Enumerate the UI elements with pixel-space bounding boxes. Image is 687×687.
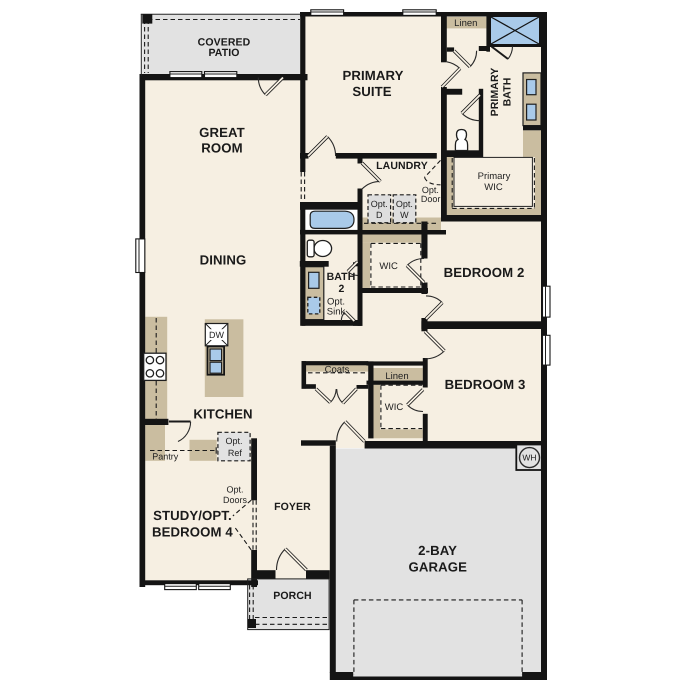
svg-text:Opt.: Opt. (396, 199, 413, 209)
svg-text:WIC: WIC (385, 402, 404, 413)
svg-text:DINING: DINING (200, 253, 247, 268)
svg-text:WIC: WIC (484, 182, 503, 193)
svg-text:Opt.: Opt. (225, 436, 242, 446)
svg-text:Doors: Doors (223, 495, 248, 505)
svg-text:W: W (400, 210, 409, 220)
svg-text:2: 2 (339, 283, 345, 295)
svg-text:Linen: Linen (385, 371, 408, 382)
svg-text:Coats: Coats (325, 365, 350, 376)
svg-text:LAUNDRY: LAUNDRY (376, 160, 428, 172)
svg-text:SUITE: SUITE (352, 84, 391, 99)
svg-text:D: D (376, 210, 383, 220)
svg-text:Opt.: Opt. (371, 199, 388, 209)
svg-text:GREAT: GREAT (199, 125, 245, 140)
svg-text:Sink: Sink (327, 307, 346, 318)
svg-text:PATIO: PATIO (208, 47, 239, 59)
svg-text:ROOM: ROOM (201, 141, 242, 156)
svg-text:DW: DW (209, 330, 224, 340)
svg-text:Linen: Linen (454, 18, 477, 29)
svg-text:Ref: Ref (228, 448, 243, 458)
svg-text:KITCHEN: KITCHEN (193, 407, 252, 422)
svg-text:Pantry: Pantry (152, 452, 179, 462)
svg-text:BEDROOM 2: BEDROOM 2 (444, 265, 525, 280)
svg-text:STUDY/OPT.: STUDY/OPT. (153, 508, 232, 523)
svg-text:BATH: BATH (502, 78, 514, 107)
svg-text:PRIMARY: PRIMARY (489, 68, 501, 117)
svg-text:FOYER: FOYER (274, 501, 311, 513)
svg-text:PORCH: PORCH (273, 590, 311, 602)
svg-text:2-BAY: 2-BAY (418, 543, 457, 558)
svg-text:GARAGE: GARAGE (409, 559, 468, 574)
svg-text:Opt.: Opt. (226, 485, 243, 495)
svg-text:BEDROOM 3: BEDROOM 3 (445, 377, 526, 392)
svg-text:Door: Door (421, 194, 441, 204)
svg-text:BATH: BATH (327, 271, 356, 283)
svg-text:WH: WH (522, 453, 536, 463)
svg-text:Primary: Primary (478, 171, 511, 182)
svg-text:PRIMARY: PRIMARY (342, 68, 403, 83)
svg-text:BEDROOM 4: BEDROOM 4 (152, 524, 233, 539)
svg-text:WIC: WIC (379, 261, 398, 272)
